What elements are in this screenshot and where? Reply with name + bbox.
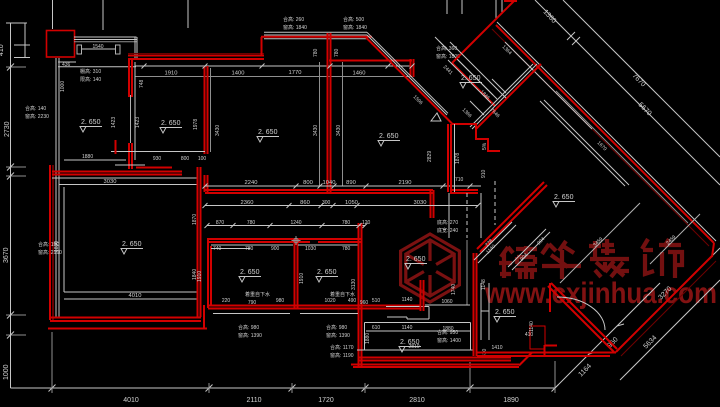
svg-text:910: 910 xyxy=(481,169,487,178)
svg-text:3030: 3030 xyxy=(414,200,427,206)
svg-text:220: 220 xyxy=(222,298,231,304)
svg-text:1880: 1880 xyxy=(82,154,93,160)
svg-text:3670: 3670 xyxy=(3,247,10,263)
svg-text:窗高: 1400: 窗高: 1400 xyxy=(437,337,461,344)
svg-text:1140: 1140 xyxy=(402,325,413,331)
svg-text:1770: 1770 xyxy=(289,70,302,76)
svg-text:4010: 4010 xyxy=(129,293,142,299)
svg-text:1400: 1400 xyxy=(232,71,245,77)
svg-text:2. 650: 2. 650 xyxy=(81,119,101,126)
svg-text:限高: 140: 限高: 140 xyxy=(80,76,101,83)
svg-text:1880: 1880 xyxy=(365,333,371,344)
svg-text:3430: 3430 xyxy=(215,125,221,136)
svg-text:1140: 1140 xyxy=(402,297,413,303)
svg-text:窗高: 1190: 窗高: 1190 xyxy=(330,352,354,359)
svg-text:2829: 2829 xyxy=(427,151,433,162)
svg-text:510: 510 xyxy=(372,298,381,304)
svg-text:780: 780 xyxy=(342,220,351,226)
svg-text:1460: 1460 xyxy=(353,71,366,77)
svg-text:748: 748 xyxy=(139,79,145,88)
svg-text:窗高: 1840: 窗高: 1840 xyxy=(343,24,367,31)
svg-text:着重自下水: 着重自下水 xyxy=(330,291,355,298)
svg-text:1240: 1240 xyxy=(290,220,301,226)
svg-text:930: 930 xyxy=(153,156,162,162)
svg-text:窗高: 1390: 窗高: 1390 xyxy=(326,332,350,339)
svg-text:3030: 3030 xyxy=(104,179,117,185)
svg-text:1880: 1880 xyxy=(442,326,453,332)
svg-text:2240: 2240 xyxy=(245,180,258,186)
svg-text:合高: 1170: 合高: 1170 xyxy=(330,344,354,351)
svg-text:1148: 1148 xyxy=(481,279,487,290)
svg-text:2190: 2190 xyxy=(399,180,412,186)
svg-text:780: 780 xyxy=(245,246,254,252)
svg-text:980: 980 xyxy=(276,298,285,304)
svg-text:1878: 1878 xyxy=(455,153,461,164)
svg-text:1910: 1910 xyxy=(299,273,305,284)
svg-text:2. 650: 2. 650 xyxy=(240,269,260,276)
svg-text:120: 120 xyxy=(362,220,371,226)
svg-text:3430: 3430 xyxy=(336,125,342,136)
svg-text:1423: 1423 xyxy=(135,117,141,128)
svg-text:780: 780 xyxy=(313,48,319,57)
svg-text:5%: 5% xyxy=(482,142,488,150)
svg-text:合高: 980: 合高: 980 xyxy=(326,324,347,331)
svg-text:2810: 2810 xyxy=(409,397,425,404)
svg-text:960: 960 xyxy=(360,300,369,306)
svg-text:1020: 1020 xyxy=(324,298,335,304)
svg-text:合高: 980: 合高: 980 xyxy=(238,324,259,331)
svg-text:740: 740 xyxy=(213,246,222,252)
svg-text:3430: 3430 xyxy=(313,125,319,136)
svg-text:窗高: 2190: 窗高: 2190 xyxy=(38,249,62,256)
svg-text:www.cxjinhua.com: www.cxjinhua.com xyxy=(484,277,717,310)
svg-text:2. 650: 2. 650 xyxy=(406,256,426,263)
svg-text:1720: 1720 xyxy=(318,397,334,404)
svg-text:2. 650: 2. 650 xyxy=(161,120,181,127)
svg-text:800: 800 xyxy=(303,180,313,186)
svg-text:2. 650: 2. 650 xyxy=(461,75,481,82)
svg-text:2360: 2360 xyxy=(241,200,254,206)
svg-text:合高: 260: 合高: 260 xyxy=(283,16,304,23)
svg-text:合高: 150: 合高: 150 xyxy=(38,241,59,248)
svg-text:2730: 2730 xyxy=(4,121,11,137)
svg-text:合高: 140: 合高: 140 xyxy=(25,105,46,112)
svg-text:100: 100 xyxy=(198,156,207,162)
svg-text:860: 860 xyxy=(300,200,310,206)
svg-text:底宽: 240: 底宽: 240 xyxy=(437,227,458,234)
svg-text:890: 890 xyxy=(346,180,356,186)
svg-text:底高: 270: 底高: 270 xyxy=(437,219,458,226)
svg-text:窗高: 1390: 窗高: 1390 xyxy=(238,332,262,339)
svg-text:2. 650: 2. 650 xyxy=(317,269,337,276)
svg-text:1030: 1030 xyxy=(305,246,316,252)
svg-text:2110: 2110 xyxy=(246,397,261,404)
svg-text:4010: 4010 xyxy=(123,397,139,404)
svg-text:合高: 500: 合高: 500 xyxy=(343,16,364,23)
svg-text:2. 650: 2. 650 xyxy=(400,339,420,346)
svg-text:900: 900 xyxy=(271,246,280,252)
svg-text:1000: 1000 xyxy=(3,364,10,380)
svg-text:窗高: 2230: 窗高: 2230 xyxy=(25,113,49,120)
svg-text:610: 610 xyxy=(372,325,381,331)
svg-text:2. 650: 2. 650 xyxy=(554,194,574,201)
svg-text:1000: 1000 xyxy=(60,81,66,92)
svg-text:2. 650: 2. 650 xyxy=(258,129,278,136)
svg-text:780: 780 xyxy=(334,48,340,57)
svg-text:870: 870 xyxy=(216,220,225,226)
svg-text:410: 410 xyxy=(0,44,5,56)
svg-text:790: 790 xyxy=(248,300,257,306)
svg-text:710: 710 xyxy=(455,177,464,183)
svg-text:窗高: 1840: 窗高: 1840 xyxy=(283,24,307,31)
svg-text:2. 650: 2. 650 xyxy=(495,309,515,316)
svg-text:1540: 1540 xyxy=(92,44,103,50)
svg-text:1060: 1060 xyxy=(441,299,452,305)
svg-text:棚高: 310: 棚高: 310 xyxy=(80,68,101,75)
svg-text:1910: 1910 xyxy=(197,271,203,282)
svg-text:1140: 1140 xyxy=(529,321,535,332)
svg-text:2. 650: 2. 650 xyxy=(379,133,399,140)
svg-text:2. 650: 2. 650 xyxy=(122,241,142,248)
svg-text:490: 490 xyxy=(348,298,357,304)
svg-text:800: 800 xyxy=(181,156,190,162)
svg-text:着重自下水: 着重自下水 xyxy=(245,291,270,298)
svg-text:1423: 1423 xyxy=(111,117,117,128)
svg-text:1410: 1410 xyxy=(491,345,502,351)
svg-text:1050: 1050 xyxy=(345,200,358,206)
svg-text:3130: 3130 xyxy=(351,279,357,290)
svg-text:1740: 1740 xyxy=(451,284,457,295)
svg-text:1870: 1870 xyxy=(192,214,198,225)
svg-text:1978: 1978 xyxy=(193,119,199,130)
svg-text:1890: 1890 xyxy=(503,397,519,404)
svg-text:780: 780 xyxy=(247,220,256,226)
svg-text:1910: 1910 xyxy=(165,71,178,77)
svg-text:780: 780 xyxy=(342,246,351,252)
svg-text:1040: 1040 xyxy=(323,180,336,186)
